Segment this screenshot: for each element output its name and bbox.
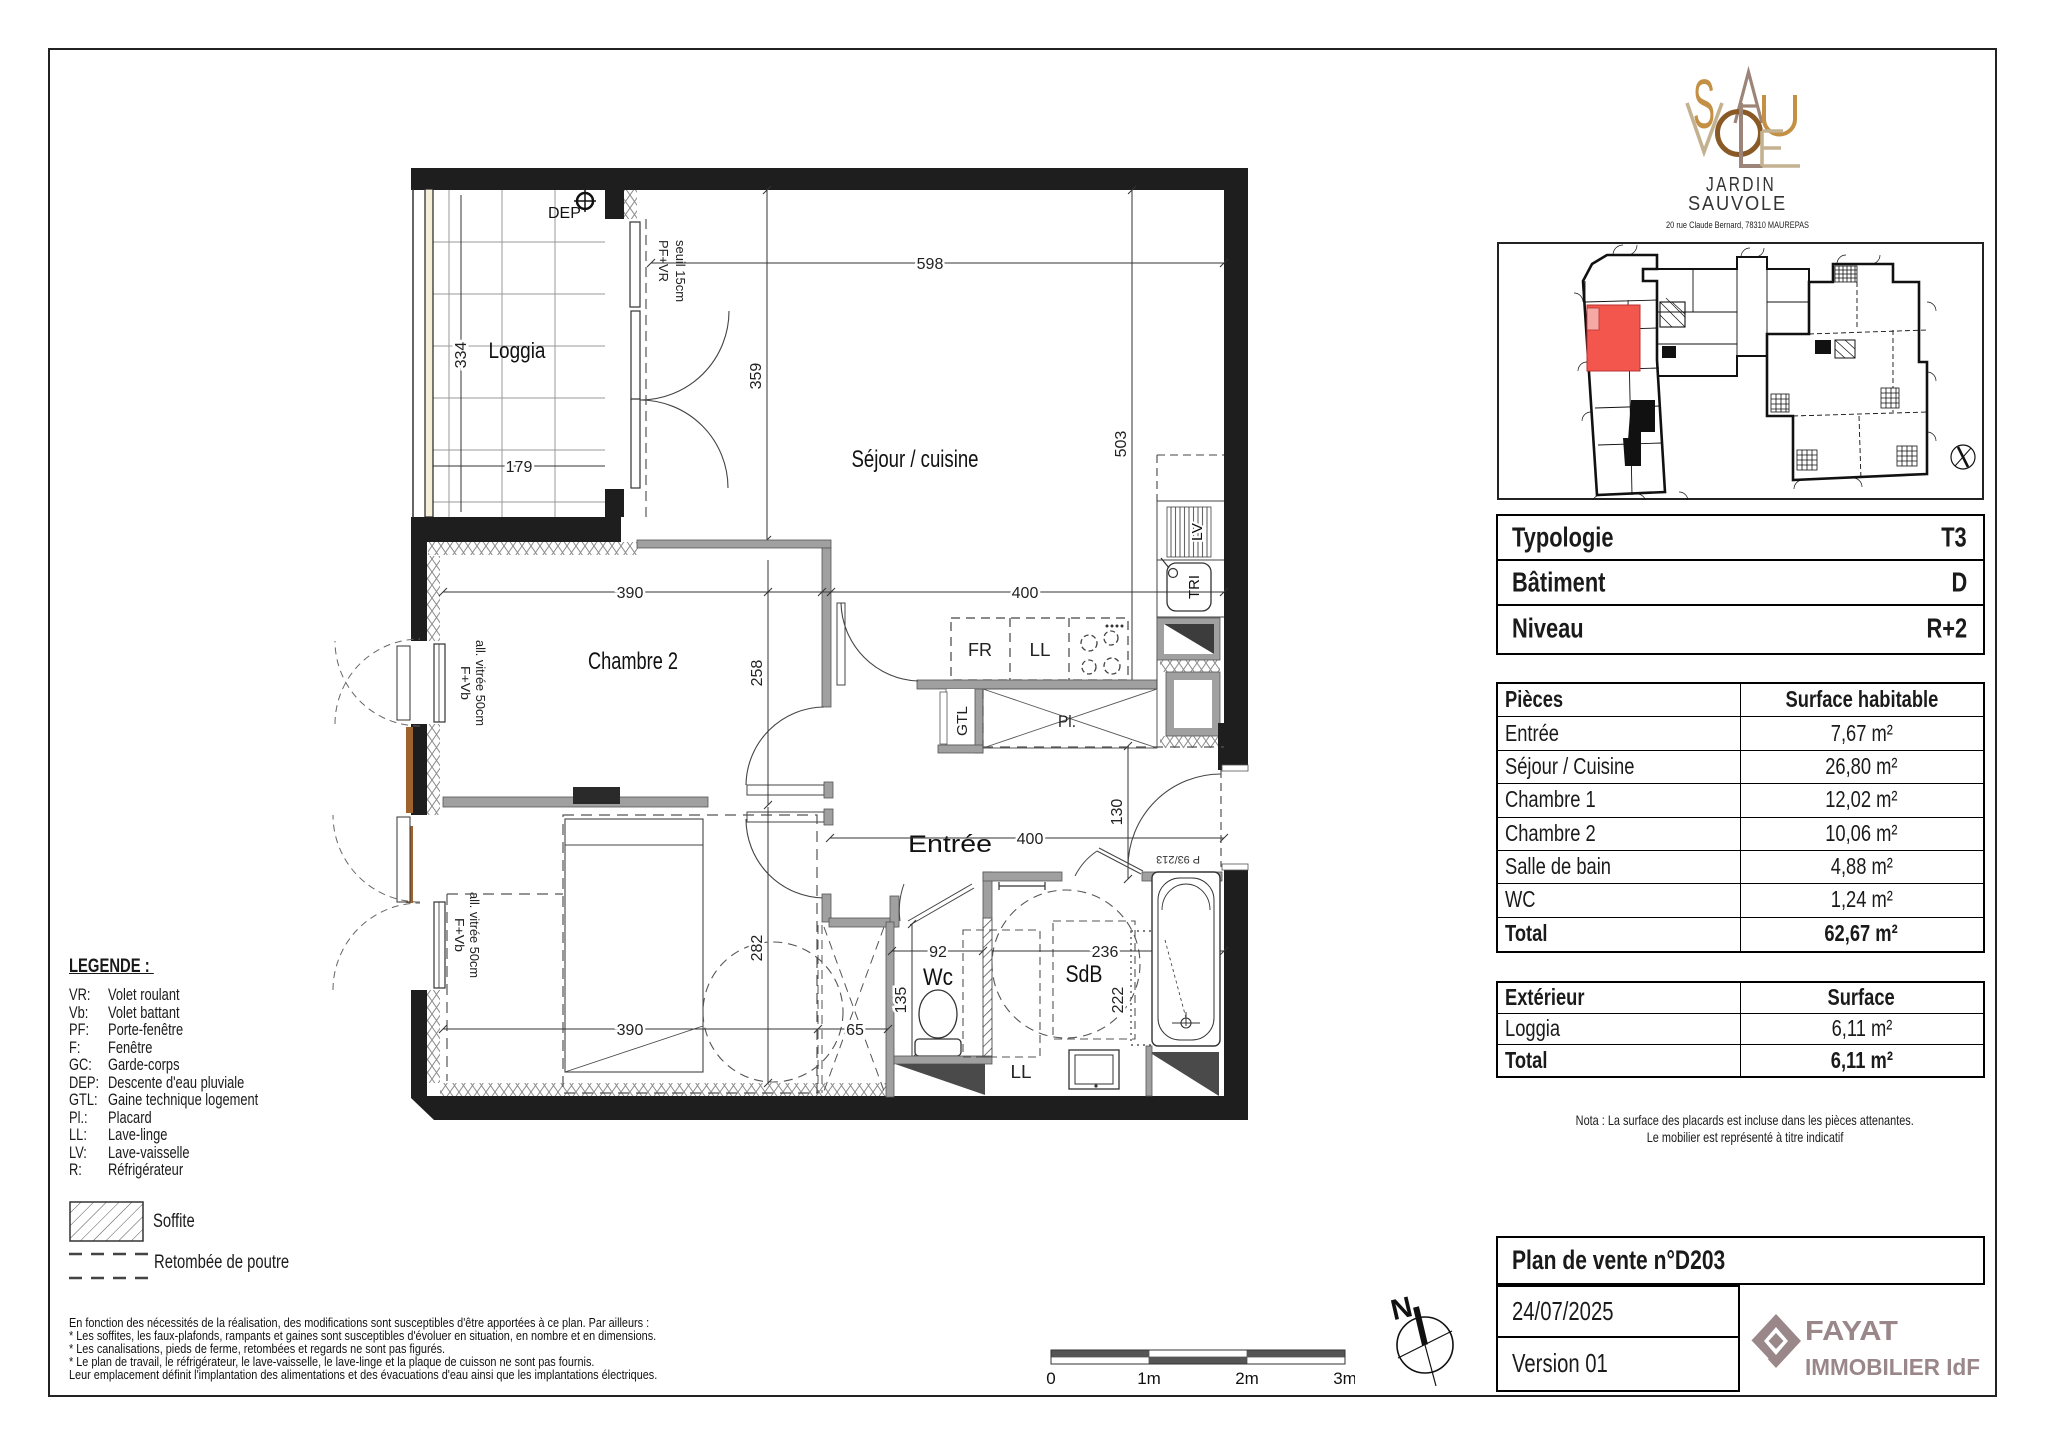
svg-text:236: 236 (1092, 944, 1119, 961)
svg-text:258: 258 (749, 660, 766, 687)
svg-text:222: 222 (1110, 987, 1127, 1014)
svg-text:F+Vb: F+Vb (458, 666, 473, 700)
svg-text:IMMOBILIER IdF: IMMOBILIER IdF (1805, 1354, 1980, 1380)
svg-text:3m: 3m (1333, 1369, 1355, 1388)
svg-text:135: 135 (893, 987, 910, 1014)
svg-text:LL: LL (1011, 1062, 1032, 1082)
svg-text:Chambre 2: Chambre 2 (588, 648, 678, 675)
svg-text:SdB: SdB (1066, 961, 1103, 988)
svg-text:FAYAT: FAYAT (1805, 1315, 1898, 1346)
svg-text:20 rue Claude Bernard, 78310 M: 20 rue Claude Bernard, 78310 MAUREPAS (1666, 220, 1809, 231)
svg-text:all. vitrée 50cm: all. vitrée 50cm (473, 640, 488, 726)
svg-text:SAUVOLE: SAUVOLE (1688, 193, 1787, 215)
svg-text:all. vitrée 50cm: all. vitrée 50cm (467, 892, 482, 978)
svg-text:390: 390 (617, 585, 644, 602)
svg-text:Wc: Wc (923, 964, 953, 991)
svg-text:N: N (1388, 1294, 1416, 1327)
svg-text:92: 92 (929, 944, 947, 961)
svg-text:F+Vb: F+Vb (452, 918, 467, 952)
svg-text:390: 390 (617, 1022, 644, 1039)
svg-text:65: 65 (846, 1022, 864, 1039)
svg-text:0: 0 (1046, 1369, 1055, 1388)
svg-text:1m: 1m (1137, 1369, 1161, 1388)
svg-text:400: 400 (1012, 585, 1039, 602)
svg-text:2m: 2m (1235, 1369, 1259, 1388)
svg-text:282: 282 (749, 935, 766, 962)
